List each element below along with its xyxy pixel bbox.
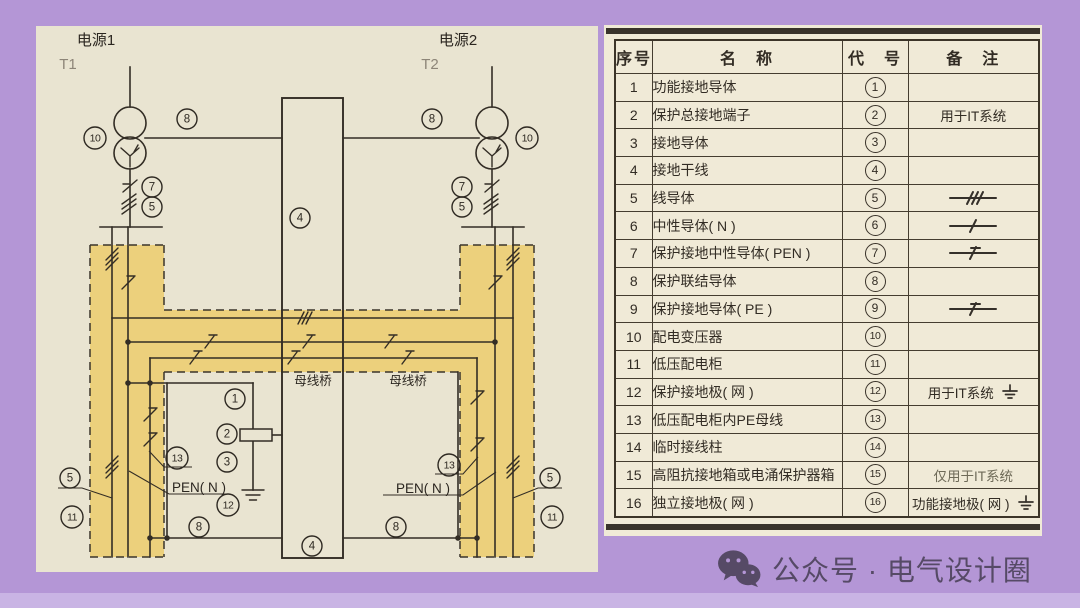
cell-no: 5 [615, 184, 652, 212]
cell-no: 12 [615, 378, 652, 406]
label-circle-7-right: 7 [452, 177, 472, 197]
remark-text: 用于IT系统 [940, 105, 1006, 125]
remark-content [909, 74, 1039, 101]
bus-bridge-label-right: 母线桥 [389, 374, 427, 388]
code-circle-icon: 1 [865, 77, 886, 98]
code-circle-icon: 15 [865, 464, 886, 485]
code-circle-icon: 12 [865, 381, 886, 402]
cell-remark [908, 350, 1039, 378]
svg-text:13: 13 [172, 453, 183, 465]
col-header-no: 序号 [615, 40, 652, 74]
table-row: 16独立接地极( 网 )16功能接地极( 网 ) [615, 489, 1039, 517]
svg-text:11: 11 [547, 512, 558, 524]
cell-code: 13 [842, 406, 908, 434]
label-circle-11-left: 11 [61, 506, 83, 528]
label-circle-5-outer-left: 5 [60, 468, 80, 488]
cell-name: 接地干线 [652, 157, 842, 185]
svg-text:4: 4 [309, 541, 316, 553]
label-circle-4-mid: 4 [290, 208, 310, 228]
table-row: 7保护接地中性导体( PEN )7 [615, 240, 1039, 268]
cell-name: 临时接线柱 [652, 433, 842, 461]
three-slash-line [947, 189, 999, 207]
transformer-t1 [114, 107, 146, 169]
cell-remark: 用于IT系统 [908, 378, 1039, 406]
cell-code: 8 [842, 267, 908, 295]
remark-content [909, 323, 1039, 350]
remark-content [909, 434, 1039, 461]
table-row: 11低压配电柜11 [615, 350, 1039, 378]
label-circle-8-bottom-right: 8 [386, 517, 406, 537]
cell-code: 11 [842, 350, 908, 378]
cell-name: 低压配电柜 [652, 350, 842, 378]
cell-code: 9 [842, 295, 908, 323]
label-circle-10-left: 10 [84, 127, 106, 149]
cell-code: 3 [842, 129, 908, 157]
earth-symbol [1001, 383, 1019, 401]
legend-table: 序号 名 称 代 号 备 注 1功能接地导体12保护总接地端子2用于IT系统3接… [614, 39, 1040, 518]
svg-text:8: 8 [196, 522, 202, 534]
code-circle-icon: 16 [865, 492, 886, 513]
table-row: 3接地导体3 [615, 129, 1039, 157]
table-row: 6中性导体( N )6 [615, 212, 1039, 240]
remark-content: 用于IT系统 [909, 102, 1039, 129]
code-circle-icon: 11 [865, 354, 886, 375]
remark-text: 用于IT系统 [928, 382, 994, 402]
cell-remark [908, 184, 1039, 212]
label-circle-11-right: 11 [541, 506, 563, 528]
remark-content: 功能接地极( 网 ) [909, 489, 1039, 516]
cell-remark [908, 74, 1039, 102]
pe-slash-line [947, 244, 999, 262]
cell-no: 2 [615, 101, 652, 129]
label-circle-3: 3 [217, 452, 237, 472]
cell-code: 16 [842, 489, 908, 517]
cell-remark [908, 323, 1039, 351]
svg-text:5: 5 [67, 473, 73, 485]
code-circle-icon: 13 [865, 409, 886, 430]
svg-text:7: 7 [149, 182, 155, 194]
table-header-row: 序号 名 称 代 号 备 注 [615, 40, 1039, 74]
cell-code: 7 [842, 240, 908, 268]
pen-label-right: PEN( N ) [396, 481, 450, 496]
cell-remark: 用于IT系统 [908, 101, 1039, 129]
remark-content: 用于IT系统 [909, 379, 1039, 406]
cell-code: 6 [842, 212, 908, 240]
svg-text:13: 13 [444, 460, 455, 472]
remark-content [909, 351, 1039, 378]
cell-code: 2 [842, 101, 908, 129]
earth-symbol [242, 490, 264, 500]
cell-no: 16 [615, 489, 652, 517]
cell-remark [908, 267, 1039, 295]
phase-mark-under-t2 [484, 194, 498, 214]
code-circle-icon: 9 [865, 298, 886, 319]
col-header-code: 代 号 [842, 40, 908, 74]
label-circle-4-bottom: 4 [302, 536, 322, 556]
table-row: 15高阻抗接地箱或电涌保护器箱15仅用于IT系统 [615, 461, 1039, 489]
pen-label-left: PEN( N ) [172, 480, 226, 495]
label-circle-2: 2 [217, 424, 237, 444]
svg-text:10: 10 [90, 133, 101, 145]
table-row: 8保护联结导体8 [615, 267, 1039, 295]
label-circle-5-outer-right: 5 [540, 468, 560, 488]
cell-code: 1 [842, 74, 908, 102]
code-circle-icon: 2 [865, 105, 886, 126]
scan-edge-top [606, 28, 1040, 34]
remark-text: 功能接地极( 网 ) [912, 493, 1010, 513]
svg-text:2: 2 [224, 429, 230, 441]
cell-name: 保护联结导体 [652, 267, 842, 295]
table-row: 9保护接地导体( PE )9 [615, 295, 1039, 323]
code-circle-icon: 7 [865, 243, 886, 264]
cell-no: 9 [615, 295, 652, 323]
t1-label: T1 [59, 56, 77, 73]
svg-text:4: 4 [297, 213, 304, 225]
code-circle-icon: 3 [865, 132, 886, 153]
svg-text:3: 3 [224, 457, 230, 469]
cell-code: 15 [842, 461, 908, 489]
label-circle-13-right: 13 [438, 454, 460, 476]
cell-name: 保护接地极( 网 ) [652, 378, 842, 406]
svg-text:7: 7 [459, 182, 465, 194]
label-circle-5-under-t2: 5 [452, 197, 472, 217]
remark-content: 仅用于IT系统 [909, 462, 1039, 489]
highlight-bands [90, 245, 534, 557]
remark-content [909, 406, 1039, 433]
cell-name: 中性导体( N ) [652, 212, 842, 240]
cell-name: 高阻抗接地箱或电涌保护器箱 [652, 461, 842, 489]
cell-code: 5 [842, 184, 908, 212]
cell-no: 10 [615, 323, 652, 351]
code-circle-icon: 5 [865, 188, 886, 209]
cell-no: 3 [615, 129, 652, 157]
cell-name: 接地导体 [652, 129, 842, 157]
remark-content [909, 268, 1039, 295]
remark-content [909, 129, 1039, 156]
watermark-text: 公众号 · 电气设计圈 [772, 549, 1032, 589]
watermark: 公众号 · 电气设计圈 [716, 544, 1032, 594]
label-circle-10-right: 10 [516, 127, 538, 149]
cell-no: 11 [615, 350, 652, 378]
cell-name: 线导体 [652, 184, 842, 212]
code-circle-icon: 6 [865, 215, 886, 236]
label-circle-7-left: 7 [142, 177, 162, 197]
svg-text:5: 5 [459, 202, 465, 214]
remark-content [909, 240, 1039, 267]
cell-no: 7 [615, 240, 652, 268]
table-row: 2保护总接地端子2用于IT系统 [615, 101, 1039, 129]
cell-name: 功能接地导体 [652, 74, 842, 102]
label-circle-5-under-t1: 5 [142, 197, 162, 217]
label-circle-12: 12 [217, 494, 239, 516]
label-circle-1: 1 [225, 389, 245, 409]
svg-text:8: 8 [393, 522, 399, 534]
code-circle-icon: 4 [865, 160, 886, 181]
earthing-diagram-panel: 电源1 电源2 T1 T2 PEN( N ) PEN( N ) 母线桥 母线桥 … [36, 26, 598, 572]
remark-content [909, 185, 1039, 212]
svg-text:5: 5 [547, 473, 553, 485]
cell-remark [908, 433, 1039, 461]
earthing-diagram: 电源1 电源2 T1 T2 PEN( N ) PEN( N ) 母线桥 母线桥 … [36, 26, 598, 572]
label-circle-8-top-right: 8 [422, 109, 442, 129]
cell-remark [908, 240, 1039, 268]
table-row: 5线导体5 [615, 184, 1039, 212]
cell-no: 8 [615, 267, 652, 295]
svg-text:5: 5 [149, 202, 155, 214]
cell-remark [908, 295, 1039, 323]
table-row: 4接地干线4 [615, 157, 1039, 185]
cell-remark [908, 129, 1039, 157]
cell-name: 独立接地极( 网 ) [652, 489, 842, 517]
wechat-icon [716, 549, 762, 589]
cell-no: 13 [615, 406, 652, 434]
table-row: 1功能接地导体1 [615, 74, 1039, 102]
remark-text: 仅用于IT系统 [934, 465, 1014, 485]
cell-name: 低压配电柜内PE母线 [652, 406, 842, 434]
cell-no: 6 [615, 212, 652, 240]
slash-line [947, 217, 999, 235]
cell-remark: 功能接地极( 网 ) [908, 489, 1039, 517]
svg-text:10: 10 [522, 133, 533, 145]
source1-label: 电源1 [77, 32, 115, 49]
cell-name: 配电变压器 [652, 323, 842, 351]
svg-text:12: 12 [223, 500, 234, 512]
col-header-remark: 备 注 [908, 40, 1039, 74]
cell-name: 保护总接地端子 [652, 101, 842, 129]
earth-symbol [1017, 494, 1035, 512]
cell-remark [908, 212, 1039, 240]
remark-content [909, 212, 1039, 239]
legend-panel: 序号 名 称 代 号 备 注 1功能接地导体12保护总接地端子2用于IT系统3接… [604, 25, 1042, 536]
code-circle-icon: 8 [865, 271, 886, 292]
source2-label: 电源2 [439, 32, 477, 49]
label-circle-13-left: 13 [166, 447, 188, 469]
cell-name: 保护接地导体( PE ) [652, 295, 842, 323]
cell-no: 14 [615, 433, 652, 461]
cell-remark [908, 157, 1039, 185]
table-row: 10配电变压器10 [615, 323, 1039, 351]
transformer-t2 [476, 107, 508, 169]
cell-code: 4 [842, 157, 908, 185]
cell-no: 1 [615, 74, 652, 102]
scan-edge-bottom [606, 524, 1040, 530]
table-row: 12保护接地极( 网 )12用于IT系统 [615, 378, 1039, 406]
svg-text:8: 8 [184, 114, 190, 126]
remark-content [909, 157, 1039, 184]
col-header-name: 名 称 [652, 40, 842, 74]
cell-code: 12 [842, 378, 908, 406]
surge-protector-box [240, 429, 272, 441]
code-circle-icon: 10 [865, 326, 886, 347]
svg-text:1: 1 [232, 394, 238, 406]
bus-bridge-label-left: 母线桥 [294, 374, 332, 388]
bottom-edge-strip [0, 593, 1080, 608]
t2-label: T2 [421, 56, 439, 73]
cell-code: 14 [842, 433, 908, 461]
svg-text:8: 8 [429, 114, 435, 126]
table-row: 13低压配电柜内PE母线13 [615, 406, 1039, 434]
legend-table-body: 1功能接地导体12保护总接地端子2用于IT系统3接地导体34接地干线45线导体5… [615, 74, 1039, 518]
cell-remark [908, 406, 1039, 434]
svg-text:11: 11 [67, 512, 78, 524]
code-circle-icon: 14 [865, 437, 886, 458]
cell-no: 15 [615, 461, 652, 489]
cell-remark: 仅用于IT系统 [908, 461, 1039, 489]
cell-no: 4 [615, 157, 652, 185]
cell-code: 10 [842, 323, 908, 351]
remark-content [909, 296, 1039, 323]
pe-slash-line [947, 300, 999, 318]
table-row: 14临时接线柱14 [615, 433, 1039, 461]
phase-mark-under-t1 [122, 194, 136, 214]
cell-name: 保护接地中性导体( PEN ) [652, 240, 842, 268]
label-circle-8-bottom-left: 8 [189, 517, 209, 537]
label-circle-8-top-left: 8 [177, 109, 197, 129]
